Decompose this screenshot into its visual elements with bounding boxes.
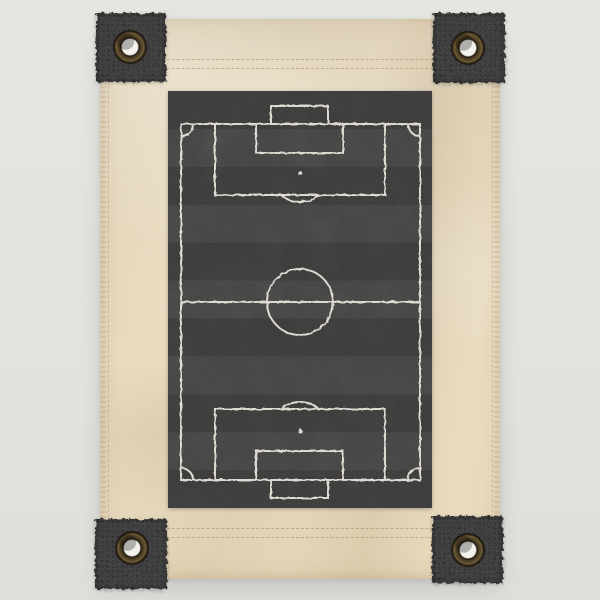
grommet-bottom-right bbox=[450, 532, 486, 568]
grommet-top-left bbox=[112, 29, 148, 65]
soccer-pitch-diagram bbox=[168, 91, 432, 508]
soccer-field-print bbox=[168, 91, 432, 508]
left-frayed-edge bbox=[101, 25, 106, 574]
grommet-bottom-left bbox=[114, 530, 150, 566]
product-photo-scene bbox=[0, 0, 600, 600]
grommet-top-right bbox=[450, 30, 486, 66]
right-frayed-edge bbox=[494, 25, 499, 574]
